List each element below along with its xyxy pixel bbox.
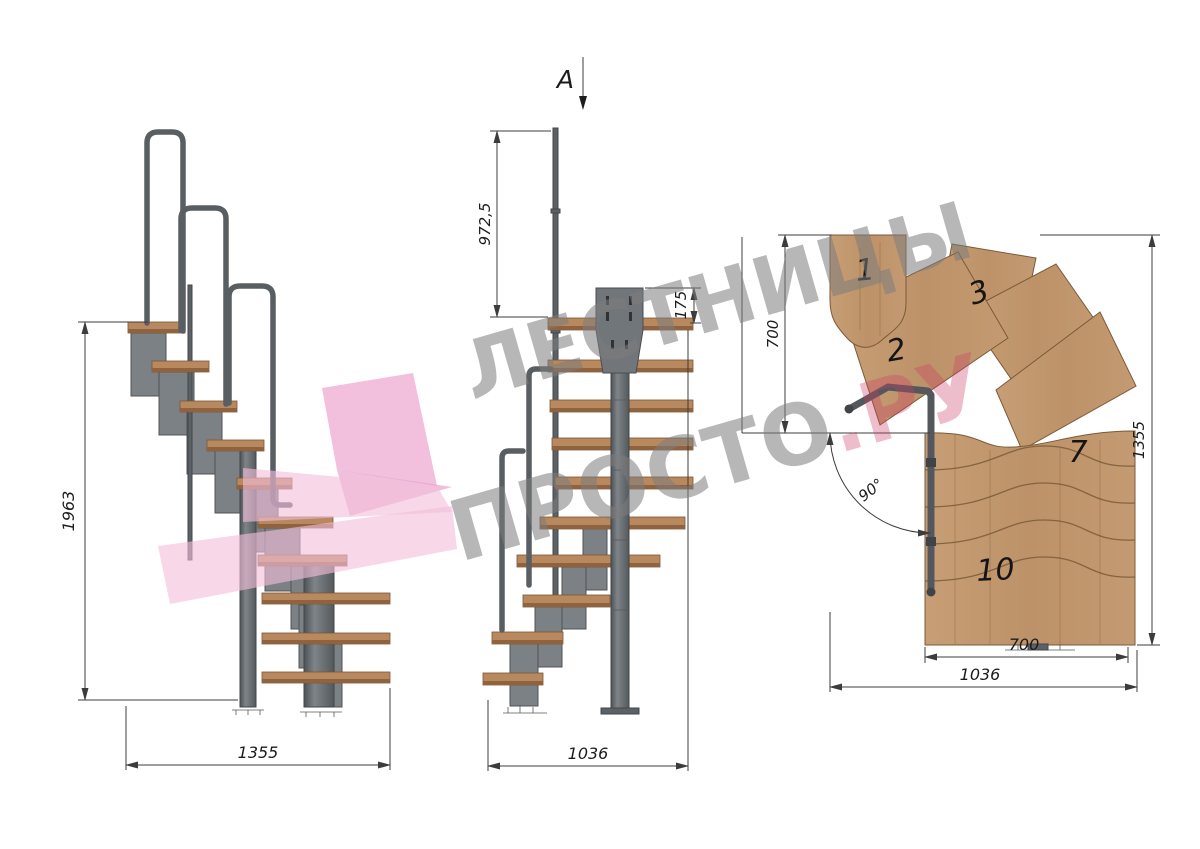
watermark: ЛЕСТНИЦЫ ПРОСТО.РУ	[158, 184, 996, 604]
section-label: A	[555, 65, 574, 94]
plan-flight-width-label: 700	[1009, 635, 1040, 654]
plan-overall-width-label: 1036	[960, 665, 1001, 684]
section-marker: A	[555, 57, 587, 110]
dimension-front-post-height: 972,5	[476, 131, 551, 317]
side-depth-label: 1355	[238, 743, 279, 762]
section-arrow-icon	[579, 96, 587, 110]
front-elevation-view: A	[476, 57, 701, 771]
side-height-label: 1963	[59, 491, 78, 532]
plan-overall-depth-label: 1355	[1130, 421, 1148, 459]
front-post-height-label: 972,5	[476, 203, 494, 246]
front-width-label: 1036	[568, 744, 609, 763]
tread-number-10: 10	[976, 552, 1016, 589]
staircase-technical-drawing: 1963 1355 A	[0, 0, 1200, 849]
plan-turn-angle-label: 90°	[855, 475, 887, 506]
tread-number-7: 7	[1068, 435, 1087, 470]
drawing-svg: 1963 1355 A	[0, 0, 1200, 849]
